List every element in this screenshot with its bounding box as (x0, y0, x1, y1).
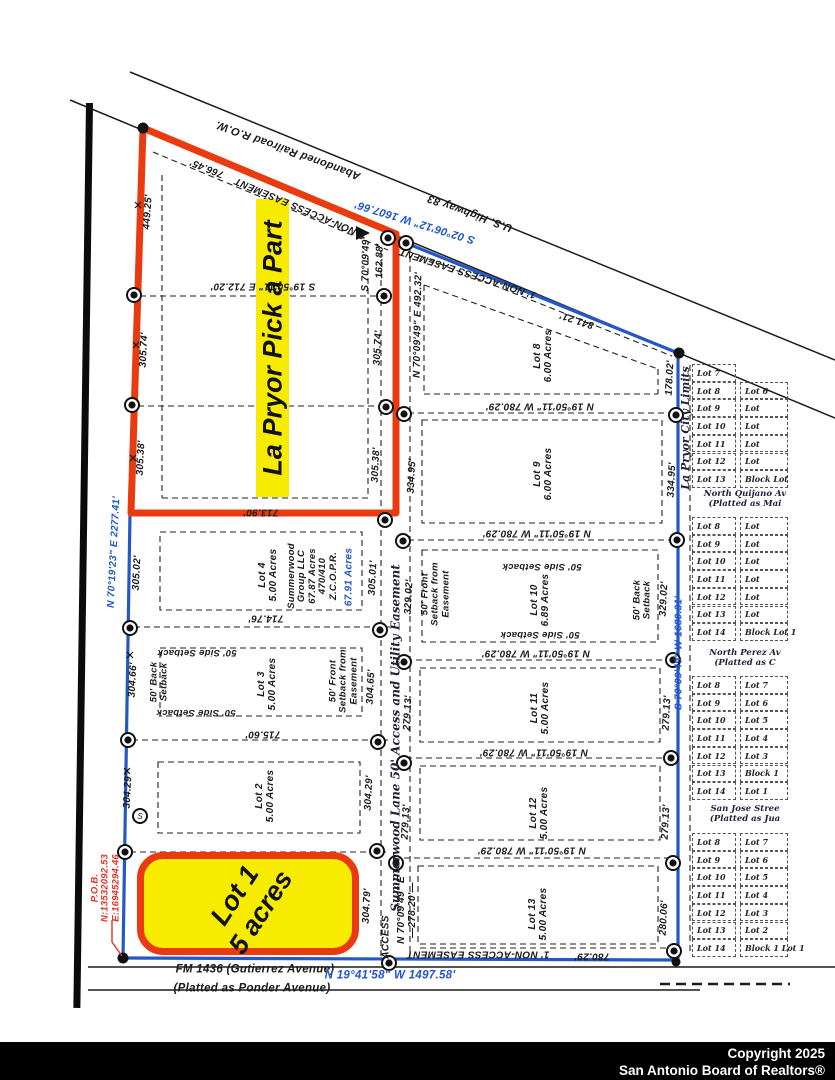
dim-304-79: 304.79' (361, 888, 374, 924)
lot-10-label: Lot 106.89 Acres (529, 574, 551, 627)
bearing-s70-162: S 70°09'49" (360, 234, 372, 291)
banner-label: La Pryor Pick a Part (257, 220, 288, 475)
bearing-n19-1497: N 19°41'58" W 1497.58' (325, 970, 456, 983)
lot1-highlight: Lot 1 5 acres (137, 852, 359, 955)
pob: P.O.B.N:13532092.53E:16945294.46 (90, 854, 121, 922)
copyright-line-1: Copyright 2025 (0, 1045, 825, 1062)
bearing-n70-278: N 70°09'49" E—278.20'— (396, 876, 418, 944)
dim-329-02-e: 329.02' (658, 581, 671, 617)
setback-side-lot10-top: 50' Side Setback (502, 561, 581, 571)
bearing-n19-780-4: N 19°50'11" W 780.29' (480, 747, 588, 758)
setback-side-lot10-bottom: 50' Side Setback (500, 629, 579, 639)
lot-2-label: Lot 25.00 Acres (254, 770, 276, 823)
highlight-banner: La Pryor Pick a Part (256, 199, 289, 497)
lot-11-label: Lot 115.00 Acres (529, 682, 551, 735)
dim-305-01: 305.01' (367, 560, 380, 596)
setback-back-lot3: 50' BackSetback (150, 662, 171, 703)
dim-304-29-e: 304.29' (363, 775, 376, 811)
dim-329-02-w: 329.02' (403, 579, 416, 615)
dim-305-38-w: 305.38' (135, 440, 148, 476)
road-fm-1436: FM 1436 (Gutierrez Avenue) (176, 964, 335, 977)
acres-67-91: 67.91 Acres (344, 548, 355, 607)
dim-305-38-e: 305.38' (370, 447, 383, 483)
lot-13-label: Lot 135.00 Acres (527, 888, 549, 941)
summerwood-lane-easement: Summerwood Lane 50' Access and Utility E… (389, 564, 402, 912)
setback-front-lot3: 50' FrontSetback fromEasement (328, 649, 359, 713)
dim-178-02: 178.02' (664, 360, 677, 396)
dim-279-13-w2: 279.13' (400, 804, 413, 840)
dim-715-60: 715.60' (245, 729, 280, 740)
bearing-n19-780-1: N 19°50'11" W 780.29' (486, 401, 594, 412)
summerwood-group: SummerwoodGroup LLC67.87 Acres470/410Z.C… (287, 543, 339, 609)
dim-305-74-e: 305.74' (372, 330, 385, 366)
city-limits: La Pryor City Limits (680, 366, 692, 489)
dim-334-95-e: 334.95' (666, 462, 679, 498)
lot-3-label: Lot 35.00 Acres (256, 658, 278, 711)
bearing-s19-712: S 19°50'11" E 712.20' (211, 281, 316, 292)
bearing-n19-780-5: N 19°50'11" W 780.29' (478, 845, 586, 856)
dim-304-65: 304.65' (365, 669, 378, 705)
bearing-n70-492: N 70°09'49" E 492.32' (412, 272, 425, 378)
pob-leader-line (112, 920, 122, 956)
setback-back-lot10: 50' BackSetback (633, 580, 654, 621)
bearing-n19-780-3: N 19°50'11" W 780.29' (482, 648, 590, 659)
setback-front-lot10: 50' FrontSetback fromEasement (420, 562, 451, 626)
dim-279-13-w1: 279.13' (402, 695, 415, 731)
dim-714-76: 714.76' (248, 613, 283, 624)
plat-map-stage: S La Pryor Pick a Part Lot 1 5 acres U.S… (0, 0, 835, 1080)
bearing-s70-1680: S 70°09'49" W 1680.31' (674, 596, 685, 710)
setback-side-lot3-bottom: 50' Side Setback (156, 707, 235, 717)
lot-9-label: Lot 96.00 Acres (532, 448, 554, 501)
lot-8-label: Lot 86.00 Acres (532, 330, 554, 383)
dim-279-13-e1: 279.13' (661, 695, 674, 731)
dim-304-29-w: 304.29' (122, 773, 135, 809)
copyright-line-2: San Antonio Board of Realtors® (0, 1062, 825, 1079)
access-label: ACCESS (381, 915, 392, 958)
dim-162-88: 162.88' (374, 243, 386, 278)
road-fm-platted: (Platted as Ponder Avenue) (174, 983, 331, 996)
dim-305-74-w: 305.74' (138, 332, 151, 368)
dim-304-66-w: 304.66' (127, 662, 140, 698)
dim-780-29-b: 780.29' (574, 951, 609, 962)
dim-280-06: 280.06' (658, 900, 671, 936)
s-monument-label: S (137, 812, 143, 821)
dim-334-95-w: 334.95' (406, 458, 419, 494)
footer-bar: Copyright 2025 San Antonio Board of Real… (0, 1042, 835, 1080)
lot-4-label: Lot 45.00 Acres (257, 549, 279, 602)
lot-12-label: Lot 125.00 Acres (528, 787, 550, 840)
dim-279-13-e2: 279.13' (660, 804, 673, 840)
setback-side-lot3-top: 50' Side Setback (157, 647, 236, 657)
bearing-n19-780-2: N 19°50'11" W 780.29' (483, 528, 591, 539)
easement-bottom: 1' NON-ACCESS EASEMENT (407, 949, 550, 960)
highway-lines (70, 72, 835, 418)
dim-713-90: 713.90' (243, 507, 278, 518)
dim-305-02-w: 305.02' (131, 555, 144, 591)
